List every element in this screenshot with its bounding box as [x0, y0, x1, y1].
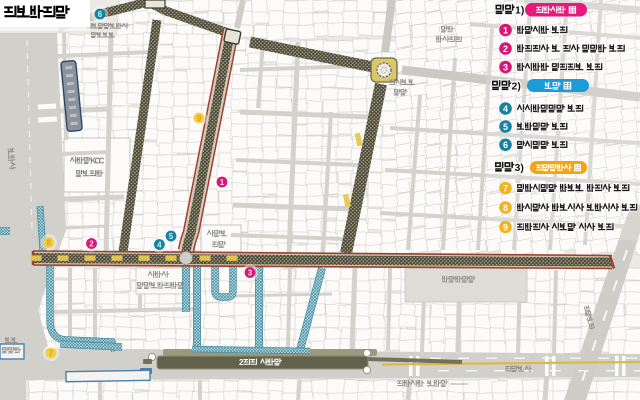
svg-text:3: 3 [503, 62, 508, 72]
svg-text:8: 8 [46, 238, 51, 247]
svg-text:1): 1) [515, 4, 524, 16]
svg-text:1: 1 [220, 178, 225, 187]
svg-text:5: 5 [503, 122, 508, 132]
svg-text:1: 1 [503, 25, 508, 35]
svg-text:5: 5 [169, 232, 174, 241]
svg-text:2): 2) [512, 80, 521, 92]
svg-text:2: 2 [239, 358, 244, 367]
svg-text:7: 7 [503, 183, 508, 193]
svg-text:8: 8 [503, 203, 508, 213]
svg-text:6: 6 [98, 10, 103, 19]
svg-text:9: 9 [197, 114, 202, 123]
svg-text:3: 3 [248, 268, 253, 277]
svg-text:9: 9 [503, 222, 508, 232]
svg-text:6: 6 [503, 140, 508, 150]
svg-text:C: C [99, 156, 105, 165]
svg-text:2: 2 [89, 239, 94, 248]
svg-text:4: 4 [157, 240, 162, 249]
svg-text:7: 7 [49, 349, 54, 358]
svg-text:3): 3) [515, 162, 524, 174]
svg-text:2: 2 [503, 44, 508, 54]
svg-text:4: 4 [503, 104, 508, 114]
